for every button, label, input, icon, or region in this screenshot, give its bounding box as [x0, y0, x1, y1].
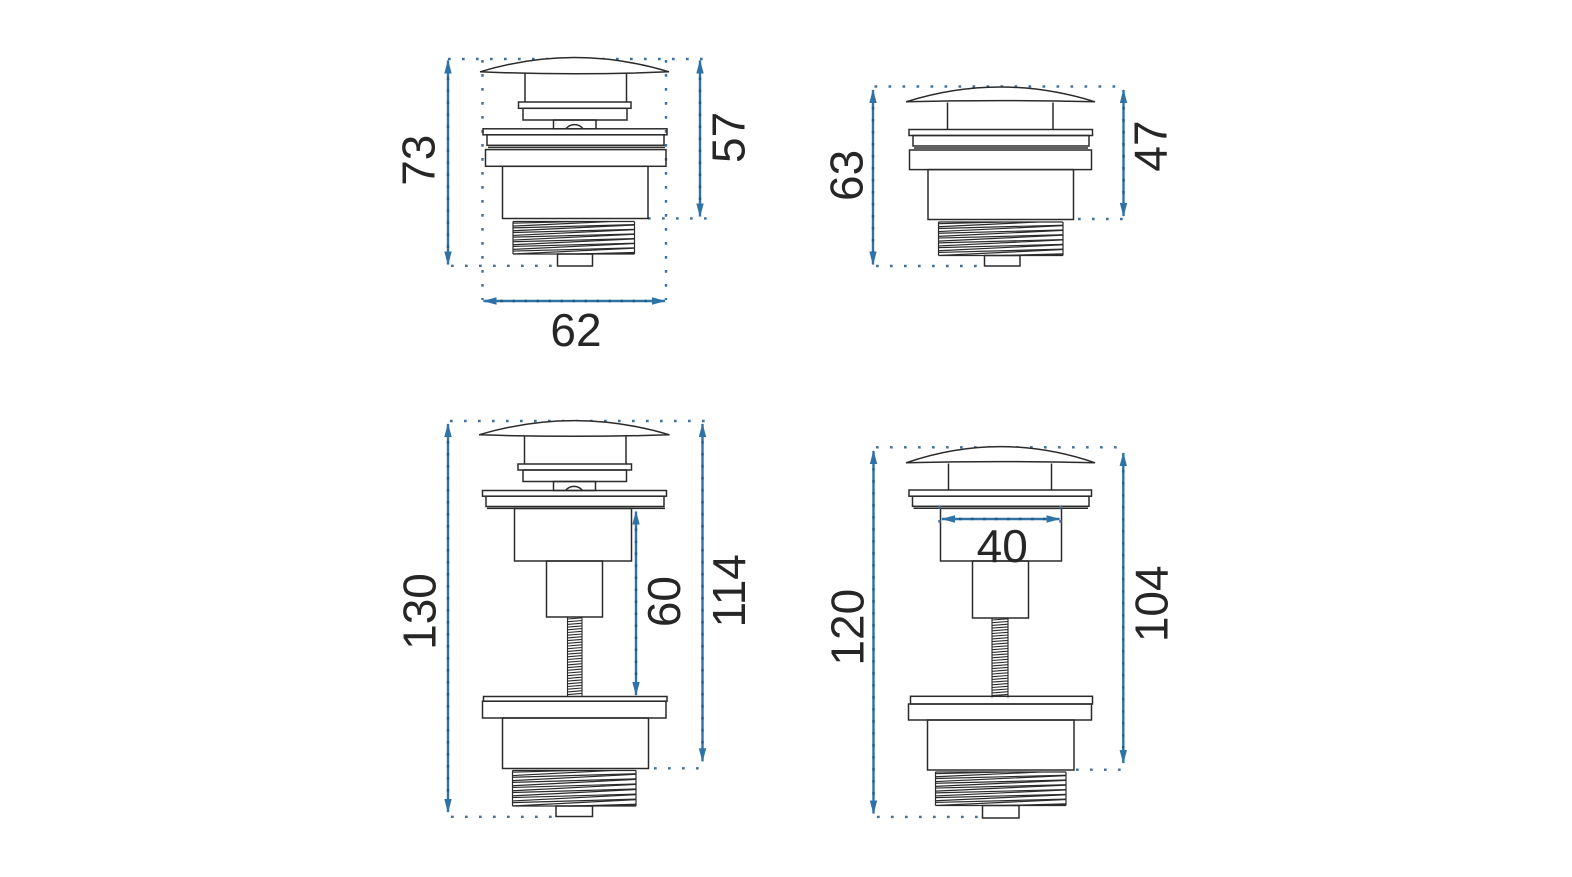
svg-text:73: 73 — [393, 135, 445, 186]
svg-text:57: 57 — [702, 112, 754, 163]
svg-text:40: 40 — [977, 520, 1028, 572]
svg-text:47: 47 — [1125, 120, 1177, 171]
svg-text:130: 130 — [393, 573, 445, 650]
svg-text:114: 114 — [703, 554, 755, 627]
svg-text:120: 120 — [821, 589, 873, 666]
svg-text:63: 63 — [820, 150, 872, 201]
svg-text:60: 60 — [638, 576, 690, 627]
svg-text:104: 104 — [1126, 565, 1178, 642]
svg-text:62: 62 — [550, 304, 601, 356]
